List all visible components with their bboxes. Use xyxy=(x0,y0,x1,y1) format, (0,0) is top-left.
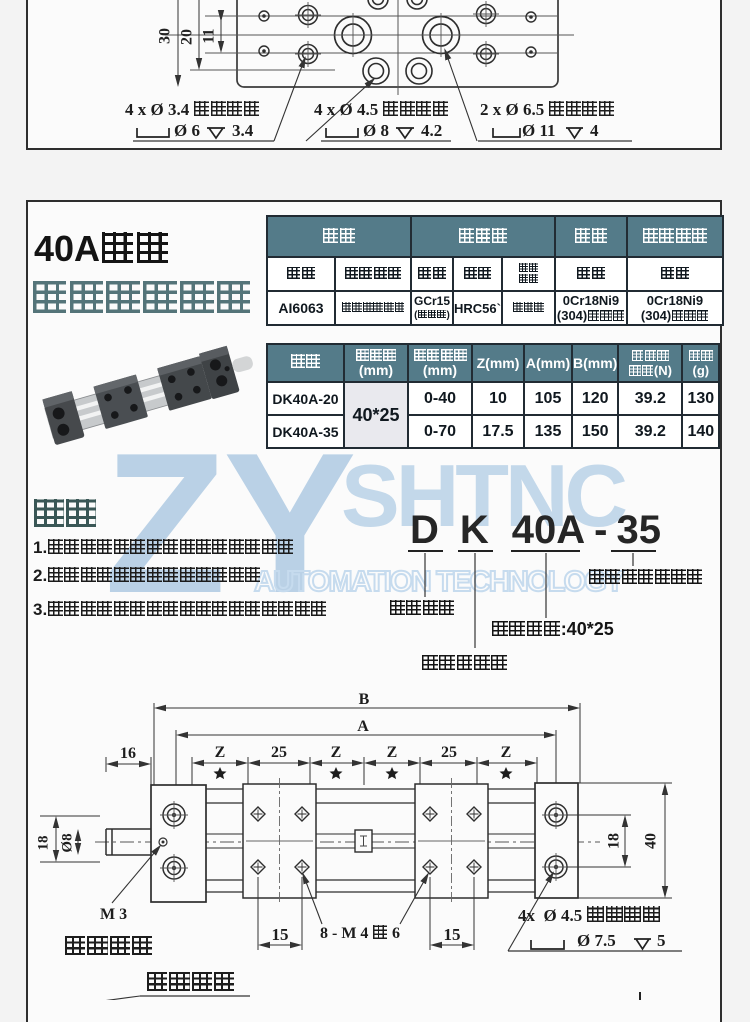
svg-text:11: 11 xyxy=(201,28,218,43)
svg-text:40: 40 xyxy=(643,833,660,849)
svg-text:Z: Z xyxy=(387,744,398,761)
svg-text:20: 20 xyxy=(179,29,196,45)
svg-text:Z: Z xyxy=(215,744,226,761)
svg-text:30: 30 xyxy=(157,28,174,44)
svg-text:18: 18 xyxy=(606,833,623,849)
svg-text:Z: Z xyxy=(501,744,512,761)
svg-text:25: 25 xyxy=(441,744,457,761)
svg-text:Z: Z xyxy=(331,744,342,761)
svg-text:Ø8: Ø8 xyxy=(59,833,75,852)
svg-text:15: 15 xyxy=(444,925,461,944)
svg-text:16: 16 xyxy=(120,745,136,762)
svg-text:B: B xyxy=(359,691,370,708)
svg-text:15: 15 xyxy=(272,925,289,944)
svg-text:18: 18 xyxy=(35,836,51,851)
svg-text:A: A xyxy=(357,718,369,735)
svg-text:25: 25 xyxy=(271,744,287,761)
